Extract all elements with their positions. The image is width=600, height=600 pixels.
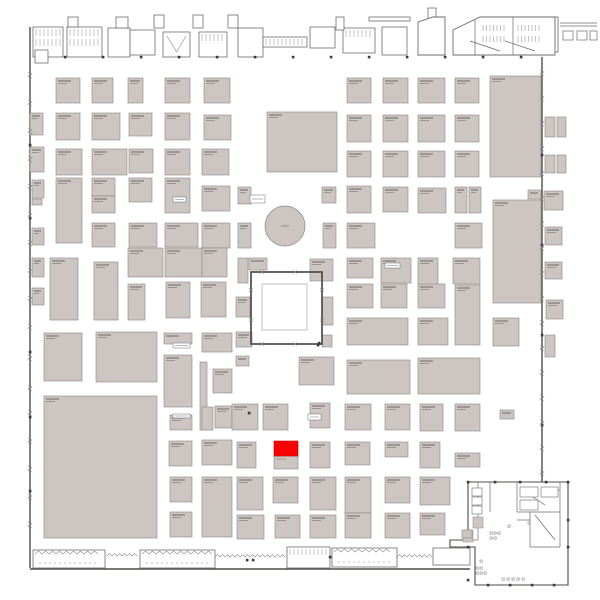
booth[interactable]	[322, 335, 332, 347]
column-marker	[29, 490, 32, 493]
booth[interactable]	[92, 113, 120, 140]
booth[interactable]	[455, 223, 482, 248]
booth[interactable]	[385, 404, 410, 430]
booth[interactable]	[92, 223, 115, 247]
booth[interactable]	[263, 404, 288, 430]
column-marker	[140, 56, 143, 59]
booth[interactable]	[204, 78, 230, 103]
booth[interactable]	[420, 442, 440, 468]
booth[interactable]	[418, 284, 445, 308]
booth[interactable]	[92, 78, 113, 103]
booth[interactable]	[347, 115, 371, 142]
column-marker	[178, 56, 181, 59]
booth[interactable]	[249, 258, 267, 270]
booth[interactable]	[347, 223, 375, 248]
booth[interactable]	[204, 115, 231, 140]
booth[interactable]	[128, 78, 143, 103]
column-marker	[567, 546, 570, 549]
booth[interactable]	[202, 440, 232, 465]
booth[interactable]	[418, 188, 446, 213]
column-marker	[519, 481, 522, 484]
booth[interactable]	[164, 333, 192, 344]
booth[interactable]	[310, 515, 336, 538]
booth[interactable]	[202, 407, 213, 430]
booth[interactable]	[381, 284, 407, 308]
booth[interactable]	[170, 512, 192, 537]
column-marker	[567, 481, 570, 484]
booth[interactable]	[455, 151, 479, 177]
column-marker	[545, 481, 548, 484]
booth[interactable]	[165, 248, 202, 277]
floor-plan	[0, 0, 600, 600]
booth[interactable]	[202, 223, 230, 248]
booth[interactable]	[237, 515, 264, 539]
booth[interactable]	[455, 187, 467, 213]
booth[interactable]	[557, 155, 566, 173]
column-marker	[444, 56, 447, 59]
booth[interactable]	[455, 453, 480, 467]
bottom-service-rooms	[33, 547, 470, 568]
booth[interactable]	[238, 187, 251, 204]
booth[interactable]	[310, 477, 336, 510]
booth[interactable]	[56, 78, 80, 103]
column-marker	[29, 416, 32, 419]
booth[interactable]	[420, 404, 443, 431]
column-marker	[329, 556, 332, 559]
column-marker	[541, 154, 544, 157]
booth[interactable]	[273, 477, 298, 503]
booth[interactable]	[453, 258, 480, 284]
top-service-rooms	[33, 8, 597, 63]
booth[interactable]	[92, 196, 115, 213]
booth[interactable]	[455, 285, 480, 345]
column-marker	[482, 56, 485, 59]
booth[interactable]	[455, 404, 480, 431]
column-marker	[246, 559, 249, 562]
column-marker	[252, 559, 255, 562]
booth[interactable]	[202, 248, 227, 277]
booth[interactable]	[165, 149, 190, 175]
booth[interactable]	[30, 147, 44, 172]
booth[interactable]	[493, 200, 541, 303]
booth[interactable]	[545, 335, 555, 357]
booth[interactable]	[385, 477, 410, 503]
booth[interactable]	[347, 360, 410, 394]
booth[interactable]	[490, 76, 541, 177]
booth[interactable]	[232, 404, 258, 430]
booth[interactable]	[383, 115, 408, 142]
booth[interactable]	[94, 262, 118, 320]
booth[interactable]	[165, 113, 190, 140]
booth[interactable]	[32, 228, 44, 245]
column-marker	[368, 56, 371, 59]
booth[interactable]	[32, 288, 44, 305]
booth[interactable]	[44, 333, 82, 381]
column-marker	[541, 334, 544, 337]
booth[interactable]	[418, 78, 445, 103]
booth[interactable]	[237, 477, 263, 510]
booth[interactable]	[500, 410, 514, 419]
booth[interactable]	[545, 155, 555, 173]
booth[interactable]	[418, 258, 438, 285]
column-marker	[102, 56, 105, 59]
booth[interactable]	[164, 355, 192, 407]
booth[interactable]	[528, 190, 541, 199]
booth[interactable]	[385, 513, 410, 538]
column-marker	[248, 412, 251, 415]
booth[interactable]	[347, 78, 371, 103]
booth[interactable]	[322, 187, 336, 203]
booth[interactable]	[128, 248, 163, 277]
booth[interactable]	[32, 199, 42, 205]
booth[interactable]	[493, 318, 519, 346]
booth[interactable]	[129, 149, 153, 173]
booth[interactable]	[165, 223, 198, 247]
column-marker	[216, 56, 219, 59]
column-marker	[509, 584, 512, 587]
floor-plan-canvas	[0, 0, 600, 600]
booth[interactable]	[545, 117, 555, 137]
booth[interactable]	[169, 441, 192, 466]
booth[interactable]	[323, 223, 336, 248]
booth[interactable]	[383, 78, 408, 103]
booth[interactable]	[213, 369, 232, 393]
booth[interactable]	[165, 78, 190, 103]
column-marker	[494, 481, 497, 484]
column-marker	[467, 579, 470, 582]
booth[interactable]	[347, 151, 371, 177]
booth[interactable]	[267, 112, 337, 172]
booth[interactable]	[345, 513, 371, 538]
booth[interactable]	[275, 515, 300, 538]
booth[interactable]	[310, 442, 330, 468]
column-marker	[29, 144, 32, 147]
booth[interactable]	[347, 284, 373, 308]
column-marker	[330, 56, 333, 59]
booth[interactable]	[347, 186, 371, 213]
booth[interactable]	[455, 115, 479, 142]
column-marker	[29, 351, 32, 354]
booth[interactable]	[381, 258, 411, 283]
booth[interactable]	[170, 477, 192, 502]
booth[interactable]	[345, 404, 371, 430]
booth[interactable]	[345, 442, 370, 465]
booth[interactable]	[383, 187, 408, 212]
column-marker	[467, 546, 470, 549]
booth[interactable]	[557, 117, 566, 137]
column-marker	[487, 584, 490, 587]
booth[interactable]	[238, 258, 248, 283]
booth[interactable]	[129, 223, 157, 247]
booth[interactable]	[545, 262, 562, 279]
booth[interactable]	[237, 442, 256, 468]
booth[interactable]	[322, 297, 333, 325]
column-marker	[520, 56, 523, 59]
booth[interactable]	[202, 186, 230, 211]
selected-booth[interactable]	[274, 441, 298, 456]
booth[interactable]	[202, 477, 232, 537]
booth[interactable]	[383, 151, 408, 177]
column-marker	[531, 584, 534, 587]
booth[interactable]	[202, 149, 229, 175]
booth[interactable]	[385, 442, 408, 457]
column-marker	[64, 56, 67, 59]
column-marker	[292, 56, 295, 59]
courtyard-inner-square	[262, 284, 307, 330]
column-marker	[567, 519, 570, 522]
column-marker	[406, 56, 409, 59]
booth[interactable]	[56, 178, 82, 243]
column-marker	[318, 342, 321, 345]
booth[interactable]	[418, 115, 445, 142]
booth[interactable]	[418, 318, 448, 345]
booth[interactable]	[347, 318, 408, 345]
booth[interactable]	[236, 356, 249, 366]
booth[interactable]	[462, 530, 472, 538]
column-marker	[254, 56, 257, 59]
booth[interactable]	[469, 187, 481, 213]
booth[interactable]	[236, 332, 252, 347]
booth[interactable]	[455, 78, 479, 103]
booth[interactable]	[96, 332, 157, 382]
booth[interactable]	[129, 113, 152, 136]
booth[interactable]	[418, 151, 445, 177]
booth[interactable]	[92, 149, 127, 175]
booth[interactable]	[420, 477, 450, 505]
booth[interactable]	[56, 149, 82, 175]
booth[interactable]	[50, 258, 78, 320]
booth[interactable]	[56, 113, 80, 140]
column-marker	[467, 481, 470, 484]
booth[interactable]	[299, 357, 334, 385]
selected-booth-base[interactable]	[274, 456, 298, 469]
column-marker	[553, 584, 556, 587]
booth[interactable]	[44, 396, 157, 538]
booth[interactable]	[129, 178, 152, 202]
booth[interactable]	[238, 223, 251, 248]
